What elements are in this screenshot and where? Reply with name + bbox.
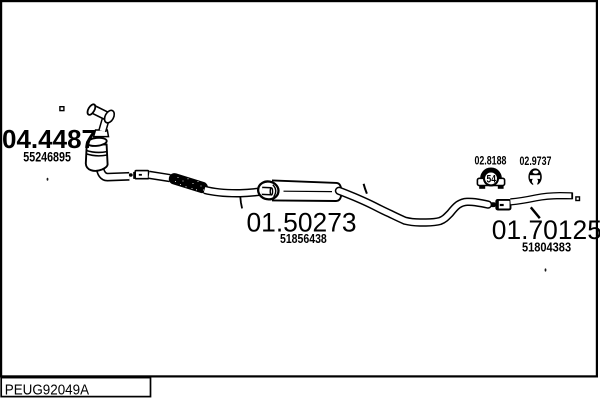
svg-text:PEUG92049A: PEUG92049A bbox=[5, 382, 90, 399]
svg-text:02.9737: 02.9737 bbox=[520, 156, 552, 168]
svg-text:55246895: 55246895 bbox=[23, 149, 71, 165]
svg-text:54: 54 bbox=[486, 173, 496, 185]
svg-text:51856438: 51856438 bbox=[280, 231, 327, 246]
svg-text:51804383: 51804383 bbox=[522, 240, 571, 255]
svg-text:02.8188: 02.8188 bbox=[475, 156, 507, 168]
